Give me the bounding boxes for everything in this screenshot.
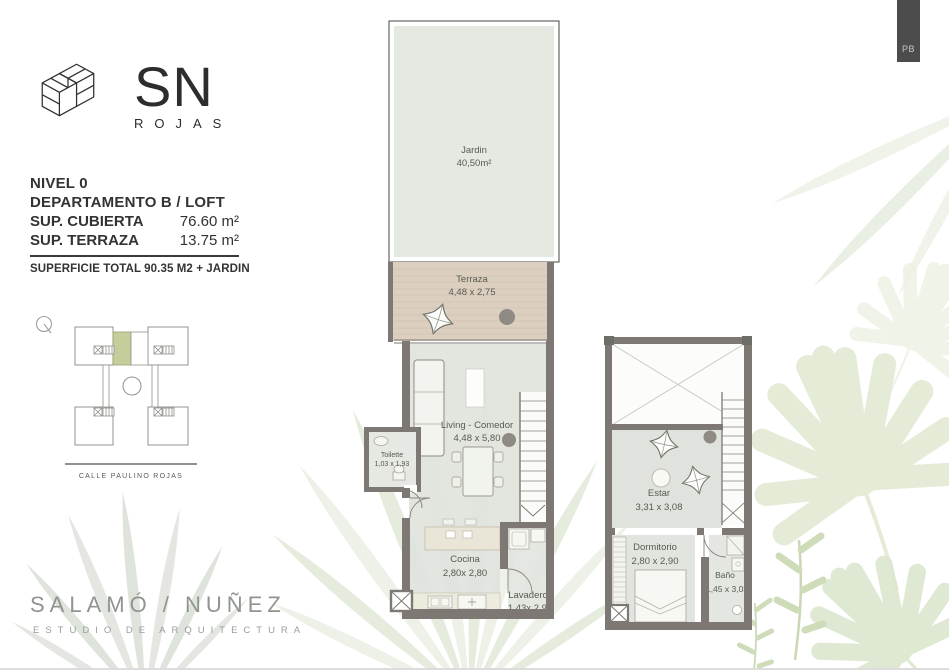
living-dims: 4,48 x 5,80: [453, 433, 500, 444]
surface-label: SUP. TERRAZA: [30, 231, 139, 250]
studio-tagline: ESTUDIO DE ARQUITECTURA: [30, 625, 306, 636]
jardin-dims: 40,50m²: [457, 158, 492, 169]
kitchen-island: [425, 527, 500, 550]
estar-name: Estar: [648, 488, 670, 499]
page-tab-label: PB: [902, 44, 915, 54]
terrace-table: [499, 309, 515, 325]
isometric-building-icon: [36, 58, 114, 136]
staircase-upper: [722, 392, 744, 525]
toilette-dims: 1,03 x 1,93: [375, 461, 410, 468]
room-estar: Estar 3,31 x 3,08: [612, 427, 722, 528]
compass-icon: [37, 317, 52, 334]
laundry-sink: [531, 529, 545, 542]
studio-footer: SALAMÓ / NUÑEZ ESTUDIO DE ARQUITECTURA: [30, 592, 306, 636]
bano-dims: 1,45 x 3,03: [706, 584, 748, 594]
surface-value: 13.75 m²: [180, 231, 239, 250]
dormitorio-dims: 2,80 x 2,90: [631, 556, 678, 567]
surface-value: 76.60 m²: [180, 212, 239, 231]
estar-column: [704, 431, 717, 444]
living-column: [502, 433, 516, 447]
brand-name: SN: [134, 63, 232, 111]
level-label: NIVEL 0: [30, 174, 242, 193]
room-jardin: Jardin 40,50m²: [389, 21, 559, 262]
lavadero-name: Lavadero: [508, 590, 548, 601]
surface-row: SUP. CUBIERTA 76.60 m²: [30, 212, 239, 231]
staircase: [520, 392, 546, 526]
site-key-plan: CALLE PAULINO ROJAS: [30, 312, 240, 498]
dormitorio-name: Dormitorio: [633, 542, 677, 553]
palm-bottom-left: [10, 492, 251, 670]
floor-plan-level0: Jardin 40,50m² Terraza 4,48 x 2,75 Livin…: [358, 8, 574, 642]
shaft-upper: [610, 605, 628, 622]
terraza-name: Terraza: [456, 274, 488, 285]
room-cocina: Cocina 2,80x 2,80: [410, 519, 500, 611]
brand-subname: ROJAS: [134, 116, 232, 131]
surface-row: SUP. TERRAZA 13.75 m²: [30, 231, 239, 250]
side-table: [652, 469, 670, 487]
tv-unit: [466, 369, 484, 407]
monstera-bottom-right: [784, 530, 949, 670]
total-surface: SUPERFICIE TOTAL 90.35 M2 + JARDIN: [30, 263, 242, 275]
corner-column: [742, 336, 752, 345]
room-living: Living - Comedor 4,48 x 5,80: [409, 344, 546, 528]
brand-logo: SN ROJAS: [36, 58, 232, 136]
sink: [374, 437, 388, 446]
room-lavadero: Lavadero 1,43x 2,95: [508, 528, 552, 614]
living-name: Living - Comedor: [441, 420, 513, 431]
toilet: [733, 606, 742, 615]
plan-sheet: SN ROJAS NIVEL 0 DEPARTAMENTO B / LOFT S…: [0, 0, 949, 670]
jardin-name: Jardin: [461, 145, 487, 156]
page-tab: PB: [897, 0, 920, 62]
corner-column: [604, 336, 614, 345]
divider-line: [30, 255, 239, 257]
estar-dims: 3,31 x 3,08: [635, 502, 682, 513]
unit-info: NIVEL 0 DEPARTAMENTO B / LOFT SUP. CUBIE…: [30, 174, 242, 275]
street-label: CALLE PAULINO ROJAS: [79, 473, 183, 480]
toilette-name: Toilette: [381, 452, 403, 459]
cocina-name: Cocina: [450, 554, 480, 565]
sliding-door: [394, 340, 547, 343]
highlighted-unit: [113, 332, 131, 365]
site-corridor: [103, 365, 109, 407]
unit-label: DEPARTAMENTO B / LOFT: [30, 193, 242, 212]
room-bano: Baño 1,45 x 3,03: [706, 535, 748, 622]
adjacent-unit: [131, 332, 148, 365]
studio-name: SALAMÓ / NUÑEZ: [30, 592, 306, 618]
room-terraza: Terraza 4,48 x 2,75: [388, 262, 554, 343]
cocina-dims: 2,80x 2,80: [443, 568, 487, 579]
kitchen-counter: [412, 593, 500, 611]
surface-label: SUP. CUBIERTA: [30, 212, 144, 231]
floor-plan-level1: Estar 3,31 x 3,08 Dormitorio 2,80 x 2,90: [596, 328, 762, 638]
leaf-sprig: [777, 536, 823, 660]
site-corridor: [152, 365, 158, 407]
shaft: [391, 591, 412, 611]
bano-name: Baño: [715, 570, 735, 580]
site-courtyard-circle: [123, 377, 141, 395]
terraza-dims: 4,48 x 2,75: [448, 287, 495, 298]
palm-top-right: [770, 89, 949, 299]
